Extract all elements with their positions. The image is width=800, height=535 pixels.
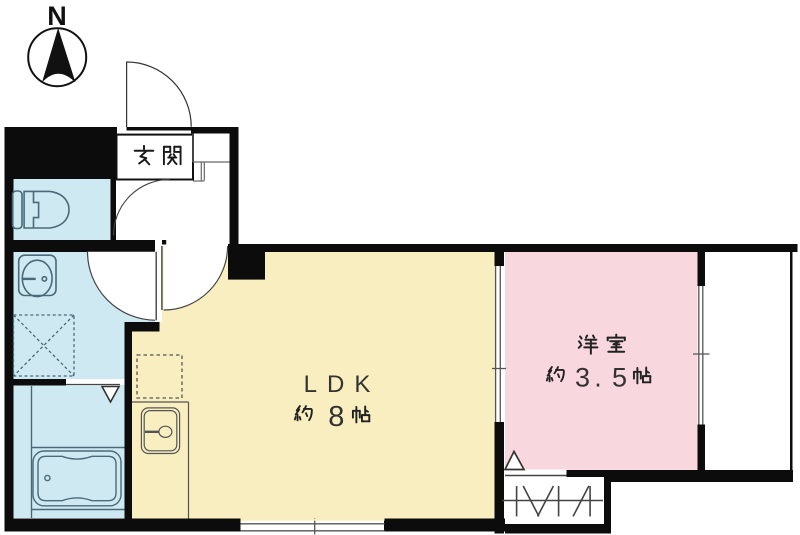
svg-text:LDK: LDK xyxy=(304,371,381,398)
svg-text:N: N xyxy=(47,1,67,31)
svg-text:.: . xyxy=(594,363,602,393)
svg-text:8: 8 xyxy=(328,401,344,433)
svg-text:3: 3 xyxy=(575,363,590,393)
svg-text:5: 5 xyxy=(612,363,627,393)
